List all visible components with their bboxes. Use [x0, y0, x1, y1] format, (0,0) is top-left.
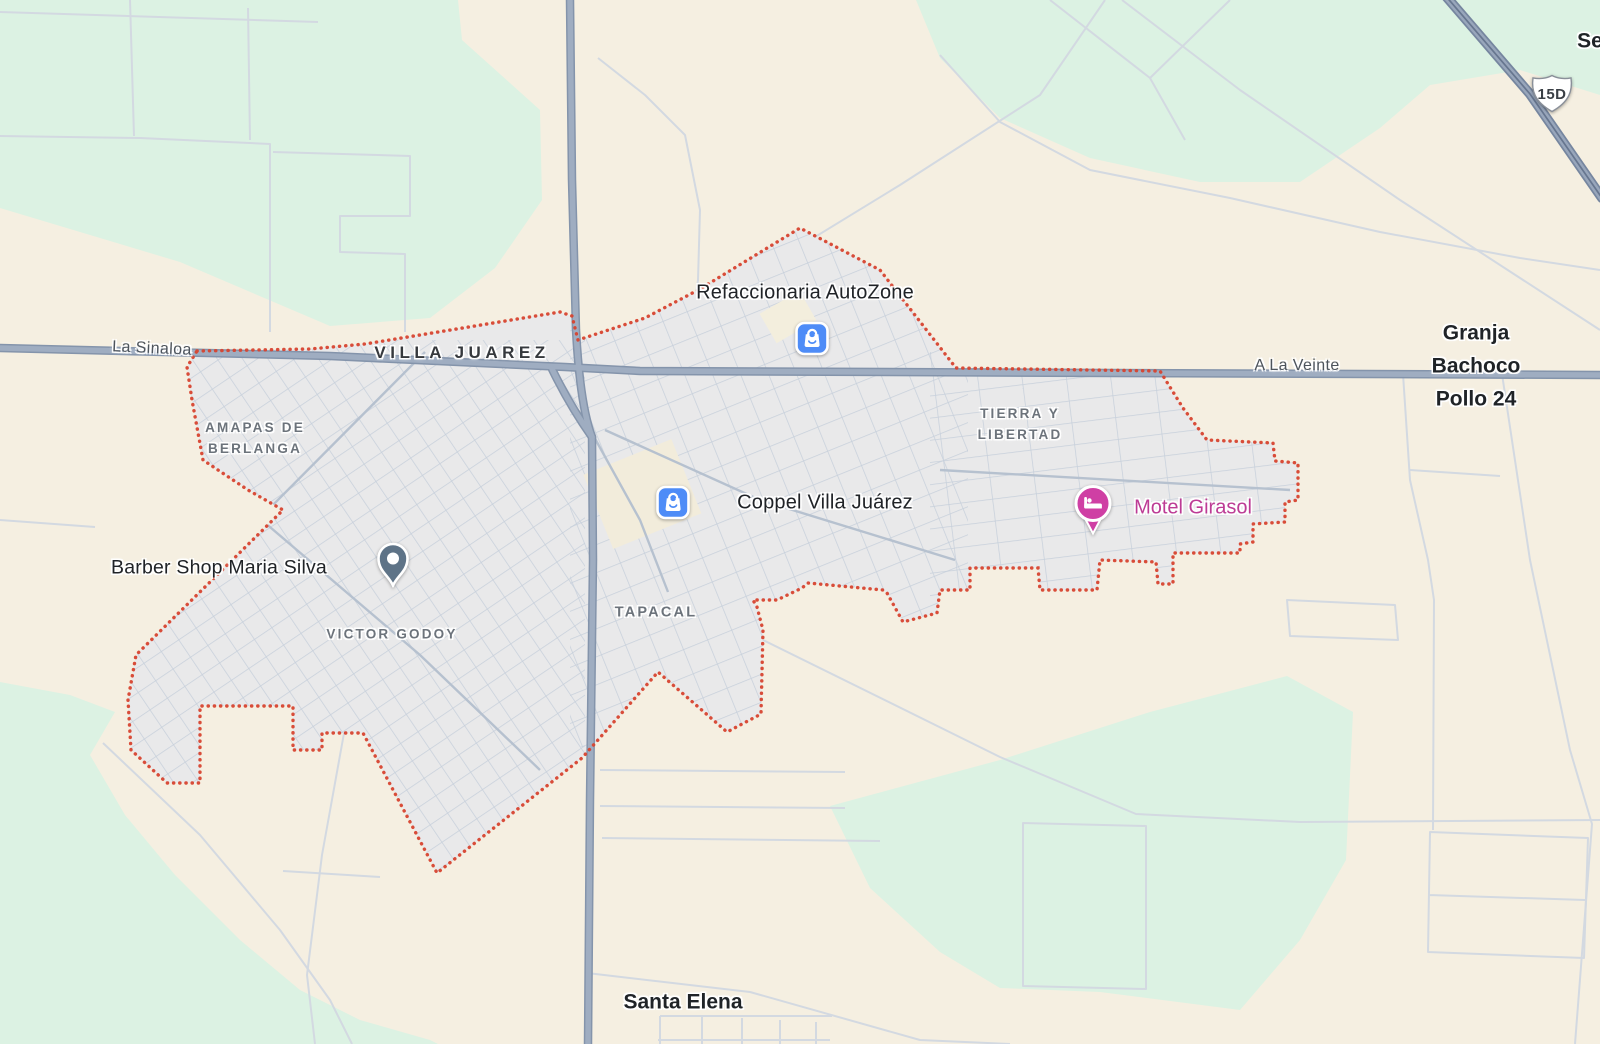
location-pin-icon[interactable] — [375, 542, 411, 593]
area-label-victor-godoy: VICTOR GODOY — [326, 624, 457, 645]
road-label-a-la-veinte: A La Veinte — [1254, 357, 1339, 375]
poi-label-motel-girasol[interactable]: Motel Girasol — [1134, 497, 1252, 520]
area-label-tierra-y-libertad: TIERRA Y LIBERTAD — [978, 403, 1063, 445]
shopping-bag-icon[interactable] — [656, 486, 690, 525]
town-label-santa-elena: Santa Elena — [623, 986, 742, 1019]
town-label-partial-right-edge: Se — [1577, 25, 1600, 58]
area-label-amapas-de-berlanga: AMAPAS DE BERLANGA — [205, 417, 305, 459]
road-label-la-sinaloa: La Sinaloa — [112, 338, 192, 359]
area-label-tapacal: TAPACAL — [615, 603, 698, 624]
poi-label-barber-shop[interactable]: Barber Shop Maria Silva — [111, 557, 327, 580]
highway-shield-icon: 15D — [1530, 74, 1574, 119]
map-canvas — [0, 0, 1600, 1044]
shopping-bag-icon[interactable] — [795, 322, 829, 361]
town-label-villa-juarez: VILLA JUAREZ — [374, 343, 549, 363]
poi-label-coppel[interactable]: Coppel Villa Juárez — [737, 492, 913, 515]
bed-pin-icon[interactable] — [1072, 484, 1114, 543]
highway-shield-number: 15D — [1537, 86, 1566, 103]
poi-label-refaccionaria-autozone[interactable]: Refaccionaria AutoZone — [696, 282, 914, 305]
poi-label-granja-bachoco[interactable]: Granja Bachoco Pollo 24 — [1432, 317, 1521, 416]
map-viewport[interactable]: La Sinaloa VILLA JUAREZ AMAPAS DE BERLAN… — [0, 0, 1600, 1044]
